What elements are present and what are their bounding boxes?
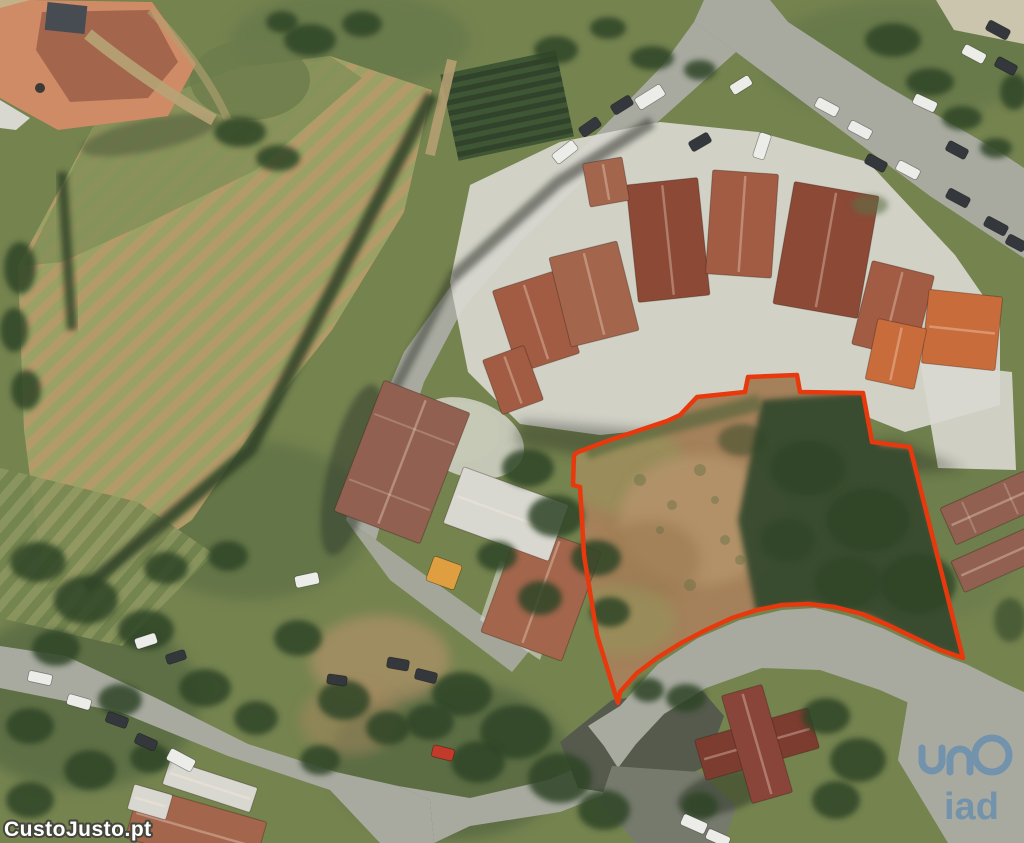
- tree: [98, 684, 142, 716]
- tree: [814, 556, 882, 608]
- scene-canvas: CustoJusto.pt iad: [0, 0, 1024, 843]
- tree: [256, 145, 300, 171]
- tree: [906, 68, 954, 96]
- tree: [11, 370, 41, 410]
- tree: [300, 745, 340, 775]
- tree: [406, 704, 454, 740]
- tree: [812, 781, 860, 819]
- tree: [274, 620, 322, 656]
- tree: [6, 708, 54, 744]
- tree: [528, 753, 592, 803]
- house-roof: [921, 289, 1002, 370]
- tree: [571, 540, 621, 576]
- tree: [980, 138, 1012, 158]
- tree: [590, 17, 626, 39]
- tree: [6, 782, 54, 818]
- house-roof: [705, 170, 778, 278]
- tree: [578, 790, 630, 830]
- iad-logo-text: iad: [944, 786, 999, 828]
- tree: [666, 684, 706, 712]
- tree: [528, 495, 584, 537]
- custojusto-watermark: CustoJusto.pt: [4, 818, 152, 841]
- tree: [502, 449, 554, 487]
- tree: [802, 698, 850, 734]
- tree: [760, 518, 816, 562]
- chimney: [35, 83, 45, 93]
- tree: [54, 576, 118, 624]
- tree: [144, 552, 188, 584]
- tree: [64, 750, 116, 790]
- tree: [518, 581, 562, 615]
- tree: [718, 424, 766, 456]
- tree: [0, 308, 28, 352]
- tree: [342, 11, 382, 37]
- tree: [534, 36, 578, 64]
- tree: [770, 440, 846, 496]
- tree: [208, 541, 248, 571]
- tree: [632, 678, 664, 702]
- house-roof: [626, 178, 710, 303]
- aerial-photo: CustoJusto.pt iad: [0, 0, 1024, 843]
- skylight: [45, 2, 88, 34]
- tree: [179, 669, 231, 707]
- tree: [4, 242, 36, 294]
- tree: [852, 195, 888, 215]
- house-roof: [582, 157, 629, 207]
- tree: [865, 23, 921, 57]
- tree: [830, 738, 886, 782]
- tree: [366, 711, 410, 745]
- tree: [477, 541, 517, 571]
- tree: [214, 117, 266, 147]
- tree: [10, 542, 66, 582]
- tree: [32, 630, 80, 666]
- tree: [234, 701, 278, 735]
- tree: [630, 46, 674, 70]
- tree: [451, 741, 505, 783]
- tree: [826, 488, 910, 552]
- tree: [684, 60, 716, 80]
- tree: [266, 11, 298, 33]
- tree: [942, 106, 982, 130]
